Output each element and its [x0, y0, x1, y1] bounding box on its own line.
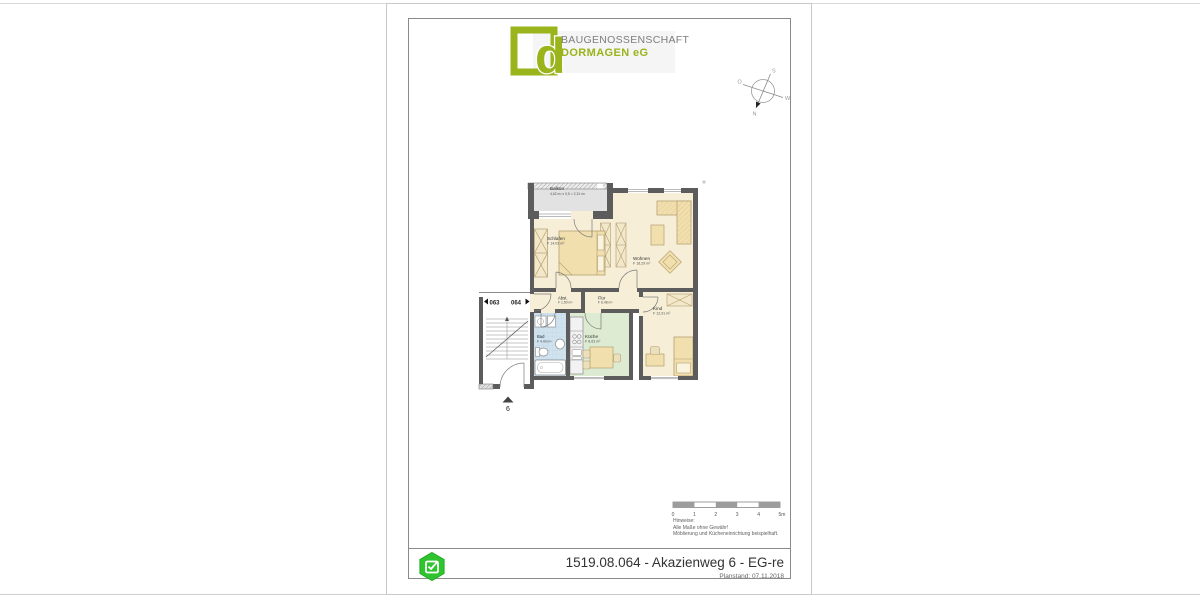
arrow-left-icon	[484, 299, 488, 305]
kind-wardrobe	[667, 294, 692, 306]
room-area-kind: F 12,91 m²	[653, 312, 671, 316]
room-label-bad: Bad	[537, 334, 545, 339]
unit-064-label: 064	[511, 301, 522, 307]
company-subname: DORMAGEN eG	[561, 47, 689, 59]
compass-w-label: W	[785, 96, 791, 102]
plan-title: 1519.08.064 - Akazienweg 6 - EG-re	[566, 555, 784, 570]
room-area-balkon: 4,62 m² x 0,5 = 2,31 m²	[550, 192, 586, 196]
washing-machine-icon	[535, 316, 546, 327]
room-area-abst: F 1,50 m²	[558, 301, 573, 305]
sink-icon	[572, 350, 582, 356]
edit-badge[interactable]	[417, 551, 447, 583]
kind-bed	[674, 337, 693, 376]
toilet-icon	[539, 348, 548, 356]
room-label-kind: Kind	[653, 306, 663, 311]
compass-rose-icon: S O W N	[735, 63, 791, 119]
staircase	[486, 317, 528, 360]
room-area-flur: F 6,48 m²	[598, 301, 613, 305]
entrance-number: 6	[506, 406, 510, 413]
notes-block: Hinweise: Alle Maße ohne Gewähr! Möblier…	[673, 518, 803, 538]
room-label-schlafen: Schlafen	[547, 236, 565, 241]
plan-date: Planstand: 07.11.2018	[719, 573, 784, 580]
entry-door-opening	[530, 294, 534, 312]
room-area-wohnen: F 18,29 m²	[633, 262, 651, 266]
titleblock-divider	[409, 548, 790, 549]
company-name-block: BAUGENOSSENSCHAFT DORMAGEN eG	[561, 34, 689, 59]
room-label-kueche: Küche	[585, 334, 598, 339]
floor-plan: 063 064 Balkon 4,62 m² x 0,5 = 2,31 m² S…	[471, 161, 711, 423]
wardrobe	[535, 229, 548, 277]
kitchen-counter	[570, 317, 583, 374]
compass-n-label: N	[753, 112, 757, 118]
unit-labels: 063 064	[484, 299, 530, 307]
compass-o-label: O	[738, 80, 743, 86]
double-bed	[559, 231, 605, 275]
entrance-marker: 6	[503, 397, 514, 414]
room-area-schlafen: F 14,03 m²	[547, 242, 565, 246]
room-label-wohnen: Wohnen	[633, 256, 650, 261]
notes-line-2: Möblierung und Kücheneinrichtung beispie…	[673, 531, 803, 538]
room-area-kueche: F 8,63 m²	[585, 340, 601, 344]
arrow-right-icon	[526, 299, 530, 305]
survey-cross-icon	[702, 180, 706, 184]
room-area-bad: F 4,43 m²	[537, 339, 552, 343]
unit-063-label: 063	[490, 301, 501, 307]
washbasin-icon	[556, 339, 565, 349]
plan-sheet: d BAUGENOSSENSCHAFT DORMAGEN eG S O W N	[408, 18, 791, 579]
balcony-railing	[528, 183, 607, 189]
room-label-balkon: Balkon	[550, 186, 564, 191]
coffee-table	[651, 225, 664, 245]
company-name: BAUGENOSSENSCHAFT	[561, 34, 689, 46]
compass-s-label: S	[772, 69, 776, 75]
entrance-arrow-icon	[503, 397, 514, 403]
